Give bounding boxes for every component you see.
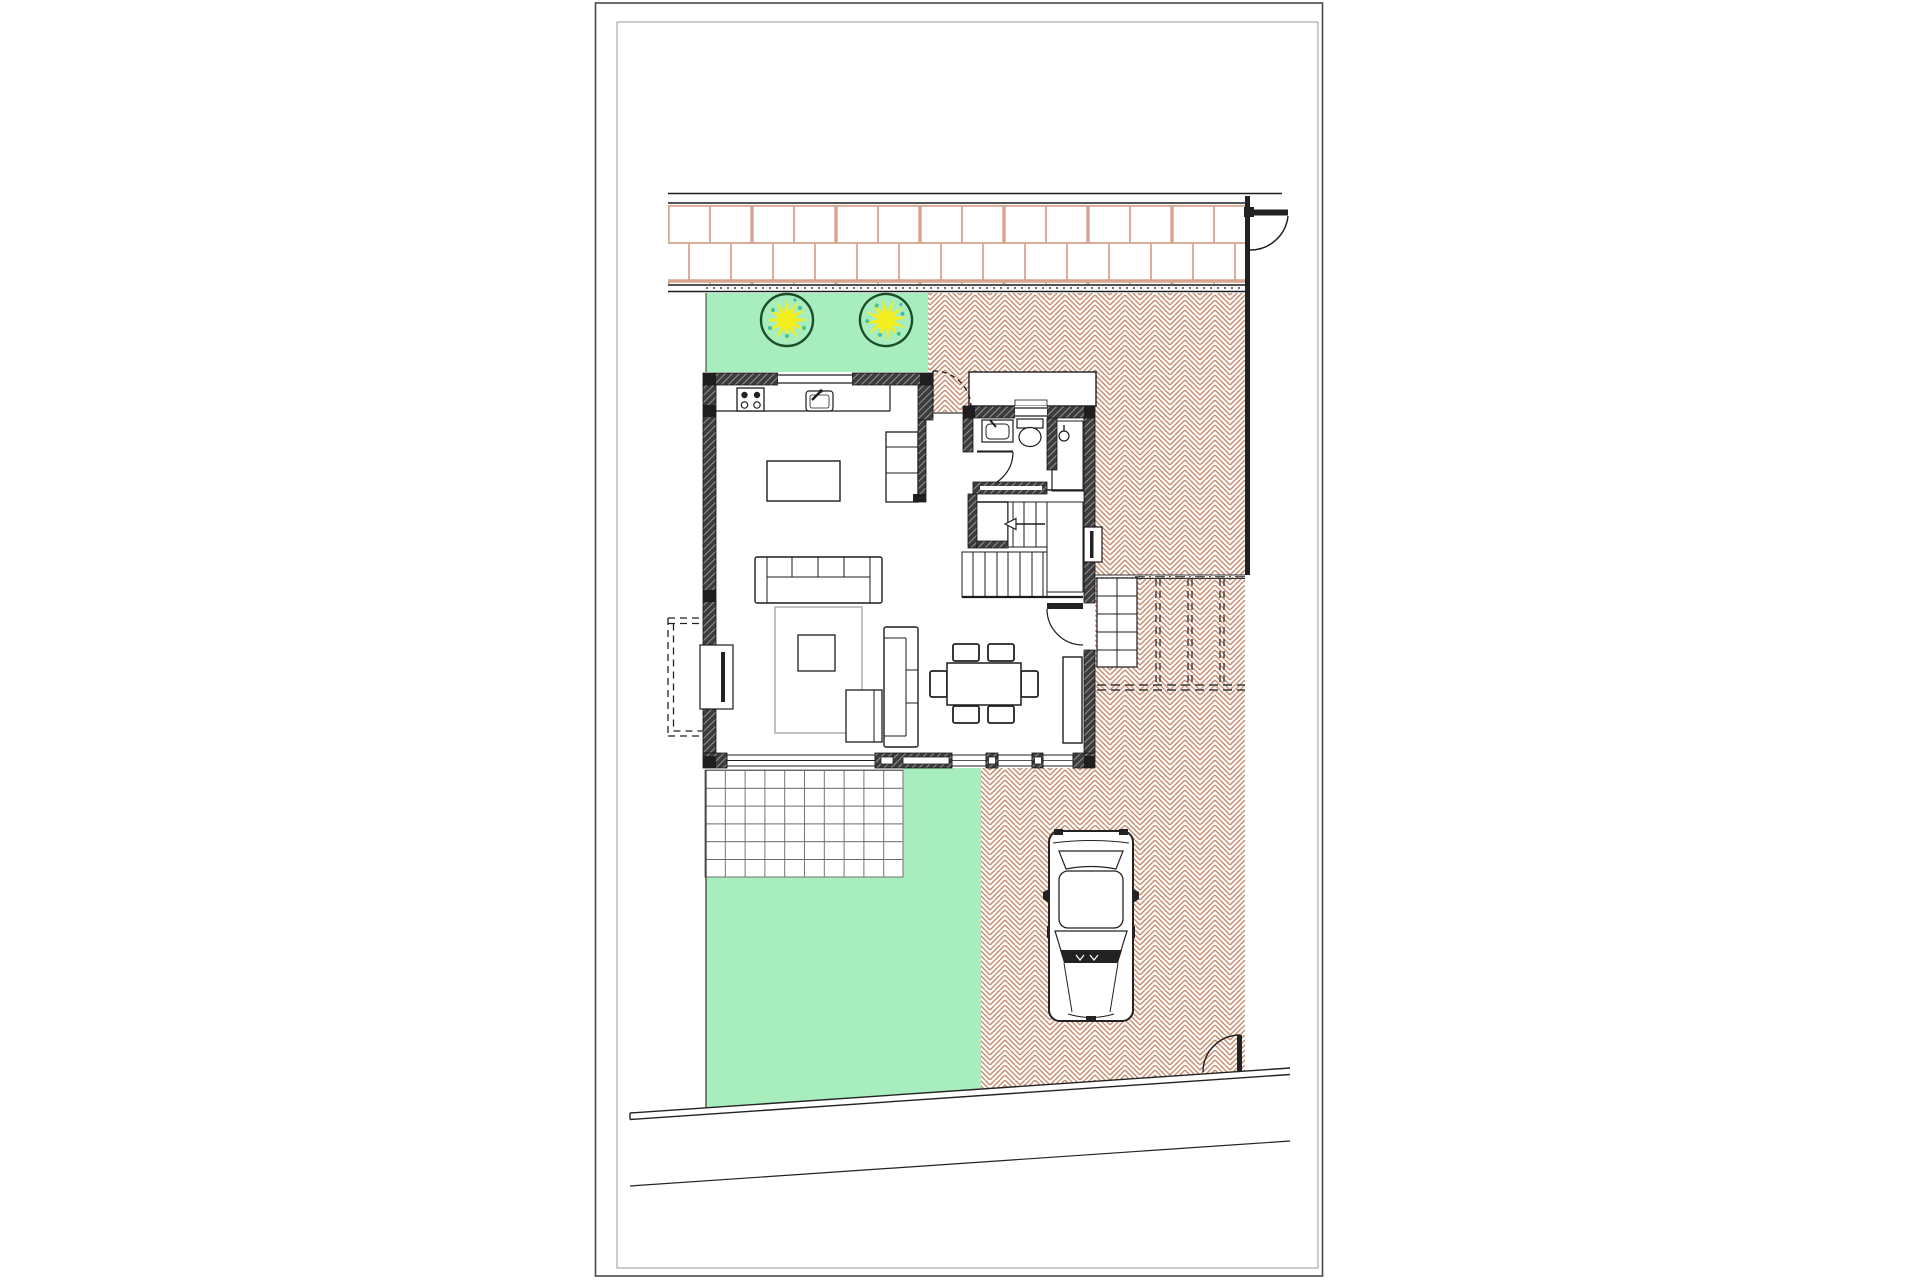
sofa — [755, 557, 882, 603]
stove-icon — [737, 388, 764, 411]
dining-chair — [988, 706, 1014, 723]
stair-landing — [1047, 502, 1083, 592]
car-taillight — [1054, 829, 1063, 835]
toilet-icon — [1017, 419, 1043, 447]
dining-chair — [953, 644, 979, 661]
car-emblem — [1086, 1016, 1096, 1022]
tree-icon — [761, 294, 813, 346]
dining-chair — [930, 671, 947, 697]
stair-closet — [975, 502, 1008, 547]
site-plan-page — [0, 0, 1920, 1280]
site-plan-drawing — [0, 0, 1920, 1280]
dining-table — [947, 663, 1021, 705]
sidewalk-brick-band — [668, 194, 1282, 292]
dining-window — [952, 755, 986, 766]
bathroom-window — [1015, 400, 1047, 418]
front-garden-strip — [706, 286, 928, 372]
terrace-sliding-window — [727, 755, 875, 766]
coffee-table — [798, 635, 835, 671]
sideboard — [1063, 657, 1082, 743]
dining-chair — [988, 644, 1014, 661]
tv-cabinet — [886, 432, 918, 502]
kitchen-island — [767, 461, 840, 501]
armchair — [846, 690, 882, 742]
kitchen-window — [778, 373, 852, 385]
washbasin-icon — [982, 420, 1013, 442]
car-taillight — [1119, 829, 1128, 835]
east-window — [1084, 527, 1102, 562]
dining-window — [1043, 755, 1073, 766]
west-window — [700, 645, 733, 709]
parked-car — [1043, 829, 1139, 1022]
dining-chair — [953, 706, 979, 723]
dining-chair — [1021, 671, 1038, 697]
chaise-sofa — [884, 627, 918, 747]
sink-icon — [806, 389, 833, 411]
dining-window — [998, 755, 1032, 766]
